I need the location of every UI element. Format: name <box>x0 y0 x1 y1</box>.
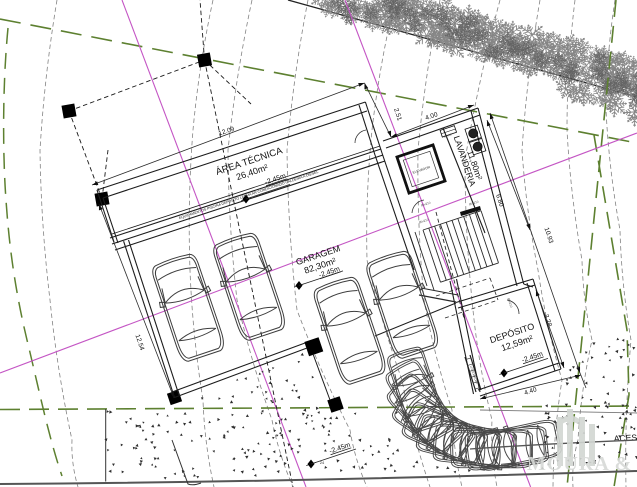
svg-text:MOURA & SOUZA: MOURA & SOUZA <box>527 453 637 475</box>
svg-text:ACESSO: ACESSO <box>614 432 637 444</box>
